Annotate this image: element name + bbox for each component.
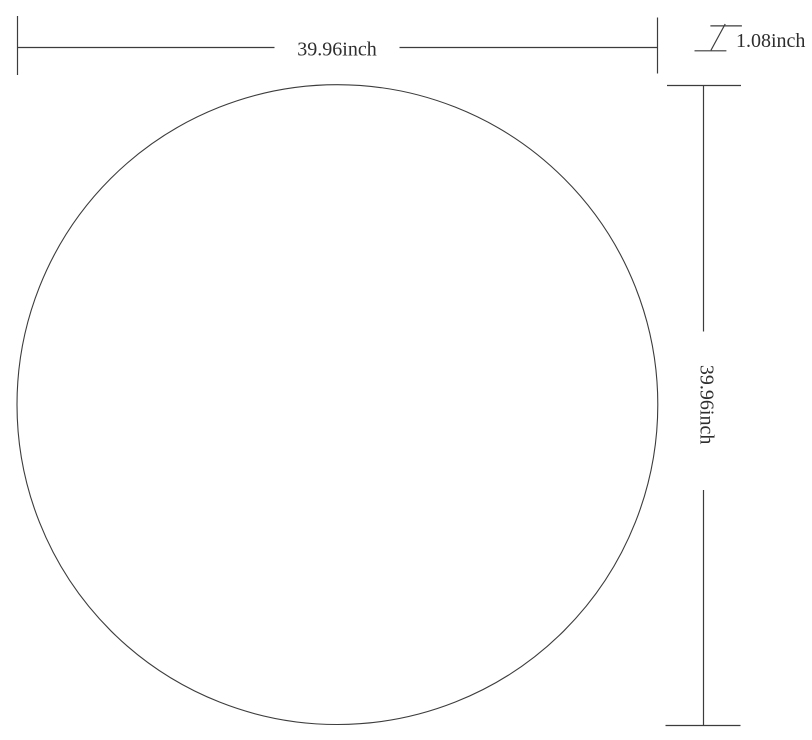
svg-text:1.08inch: 1.08inch [736,30,805,52]
svg-text:39.96inch: 39.96inch [297,39,376,61]
svg-text:39.96inch: 39.96inch [696,365,718,444]
